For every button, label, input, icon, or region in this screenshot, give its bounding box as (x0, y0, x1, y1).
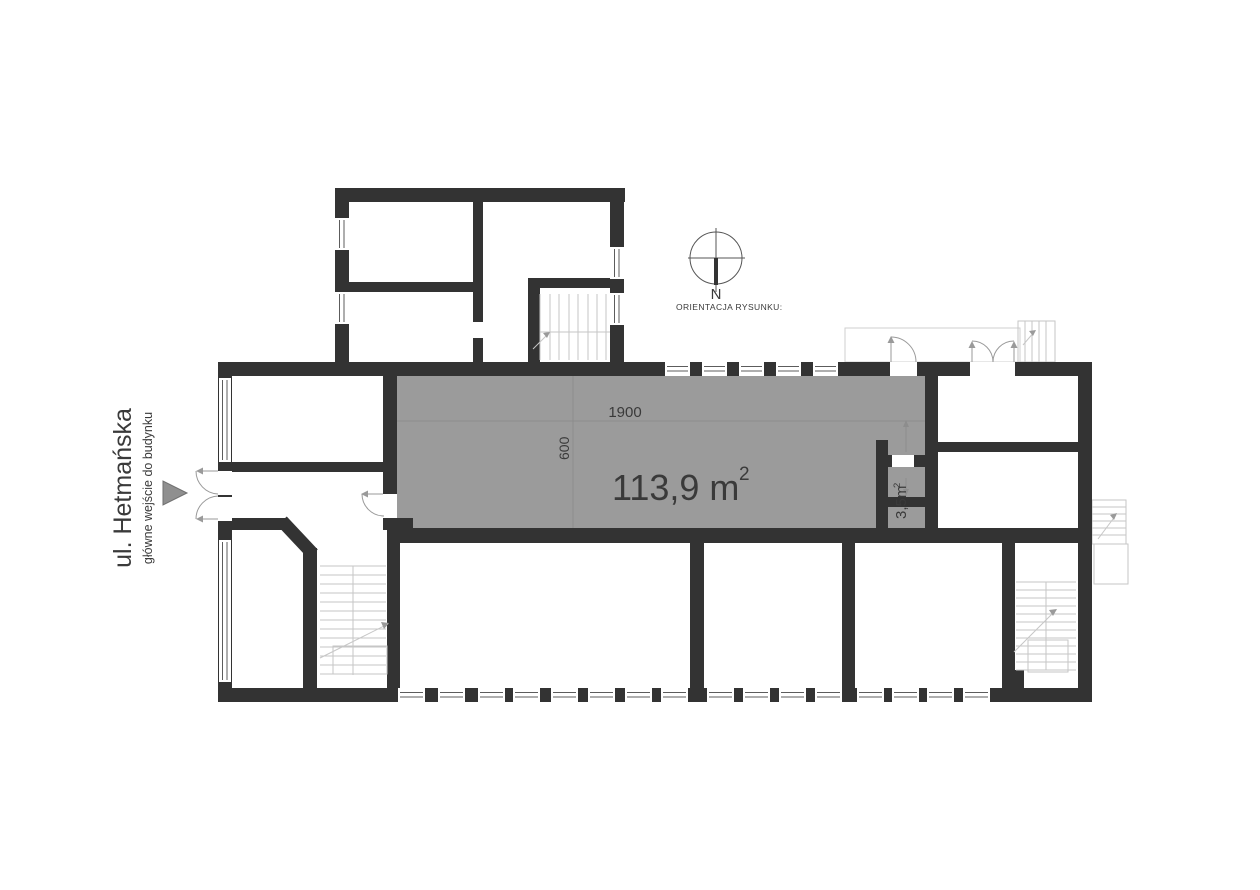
small-area-superscript: 2 (892, 483, 903, 488)
compass-north-label: N (711, 286, 722, 303)
compass-caption: ORIENTACJA RYSUNKU: (676, 302, 782, 312)
vestibule-hall-door (361, 491, 384, 517)
top-single-door (888, 336, 917, 362)
street-label-group: ul. Hetmańska główne wejście do budynku (109, 408, 155, 568)
stairs-exterior-top (1018, 321, 1055, 362)
small-room-left-wall (876, 440, 888, 528)
stairs-left (320, 566, 389, 675)
main-area-label: 113,9 m (612, 467, 739, 508)
entrance-arrow (163, 481, 187, 505)
dim-depth-label: 600 (556, 436, 572, 460)
entrance-double-door (196, 468, 218, 523)
street-subtitle-label: główne wejście do budynku (141, 412, 155, 564)
annex-top-wall (335, 188, 625, 202)
stairs-annex (533, 294, 610, 360)
dim-width-label: 1900 (608, 404, 641, 421)
main-top-wall (218, 362, 1092, 376)
main-bottom-wall (218, 688, 1092, 702)
annex-left-wall (335, 188, 349, 375)
stairs-exterior-right (1092, 500, 1128, 584)
main-area-superscript: 2 (739, 464, 750, 485)
top-double-door (969, 341, 1018, 362)
stairs-bottom-right (1014, 582, 1076, 672)
annex-right-wall (610, 188, 624, 375)
street-name-label: ul. Hetmańska (109, 408, 137, 568)
floor-plan-canvas: N ORIENTACJA RYSUNKU: ul. Hetmańska głów… (0, 0, 1260, 890)
small-area-label: 3,5m (893, 486, 910, 519)
compass: N ORIENTACJA RYSUNKU: (676, 228, 782, 312)
